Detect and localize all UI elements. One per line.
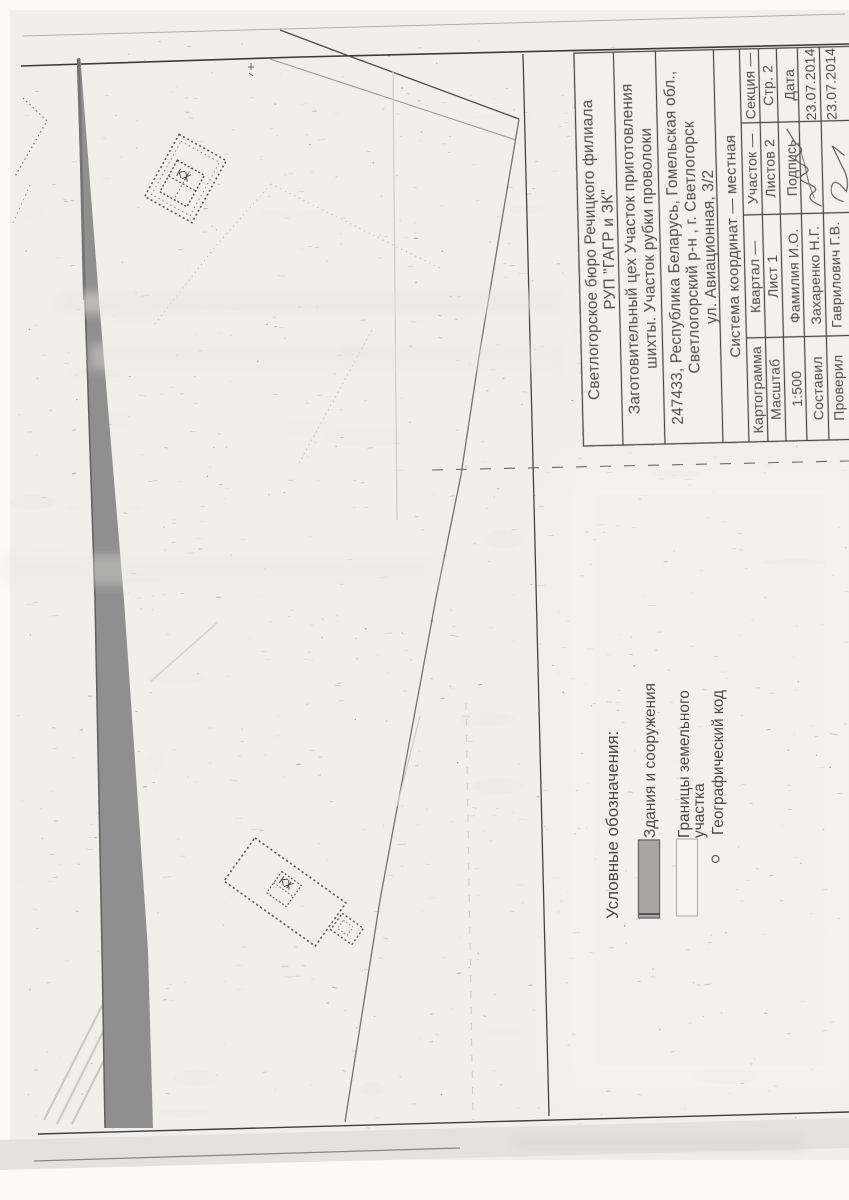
- svg-text:Захаренко Н.Г.: Захаренко Н.Г.: [806, 226, 824, 325]
- svg-text:Квартал —: Квартал —: [746, 240, 764, 313]
- svg-text:Участок —: Участок —: [743, 133, 761, 204]
- svg-text:Дата: Дата: [781, 69, 798, 101]
- svg-text:Масштаб: Масштаб: [766, 358, 783, 420]
- svg-text:Подпись: Подпись: [783, 139, 800, 196]
- svg-text:Листов 2: Листов 2: [761, 139, 778, 198]
- svg-text:23.07.2014: 23.07.2014: [822, 48, 840, 120]
- svg-text:Здания и сооружения: Здания и сооружения: [642, 683, 659, 838]
- svg-text:Стр. 2: Стр. 2: [759, 65, 776, 106]
- svg-text:Фамилия И.О.: Фамилия И.О.: [785, 228, 803, 323]
- svg-text:Секция —: Секция —: [741, 52, 759, 119]
- svg-text:Условные обозначения:: Условные обозначения:: [603, 731, 622, 919]
- svg-text:РУП "ГАГР и ЗК": РУП "ГАГР и ЗК": [599, 189, 619, 310]
- svg-text:1:500: 1:500: [788, 371, 805, 407]
- svg-text:23.07.2014: 23.07.2014: [801, 48, 819, 120]
- svg-text:Картограмма: Картограмма: [748, 346, 766, 434]
- svg-text:участка: участка: [691, 783, 708, 838]
- svg-text:Составил: Составил: [809, 356, 827, 420]
- svg-text:Гаврилович Г.В.: Гаврилович Г.В.: [826, 222, 845, 329]
- svg-text:Лист 1: Лист 1: [764, 254, 781, 298]
- svg-text:Географический код: Географический код: [710, 690, 727, 835]
- svg-text:Проверил: Проверил: [829, 355, 847, 421]
